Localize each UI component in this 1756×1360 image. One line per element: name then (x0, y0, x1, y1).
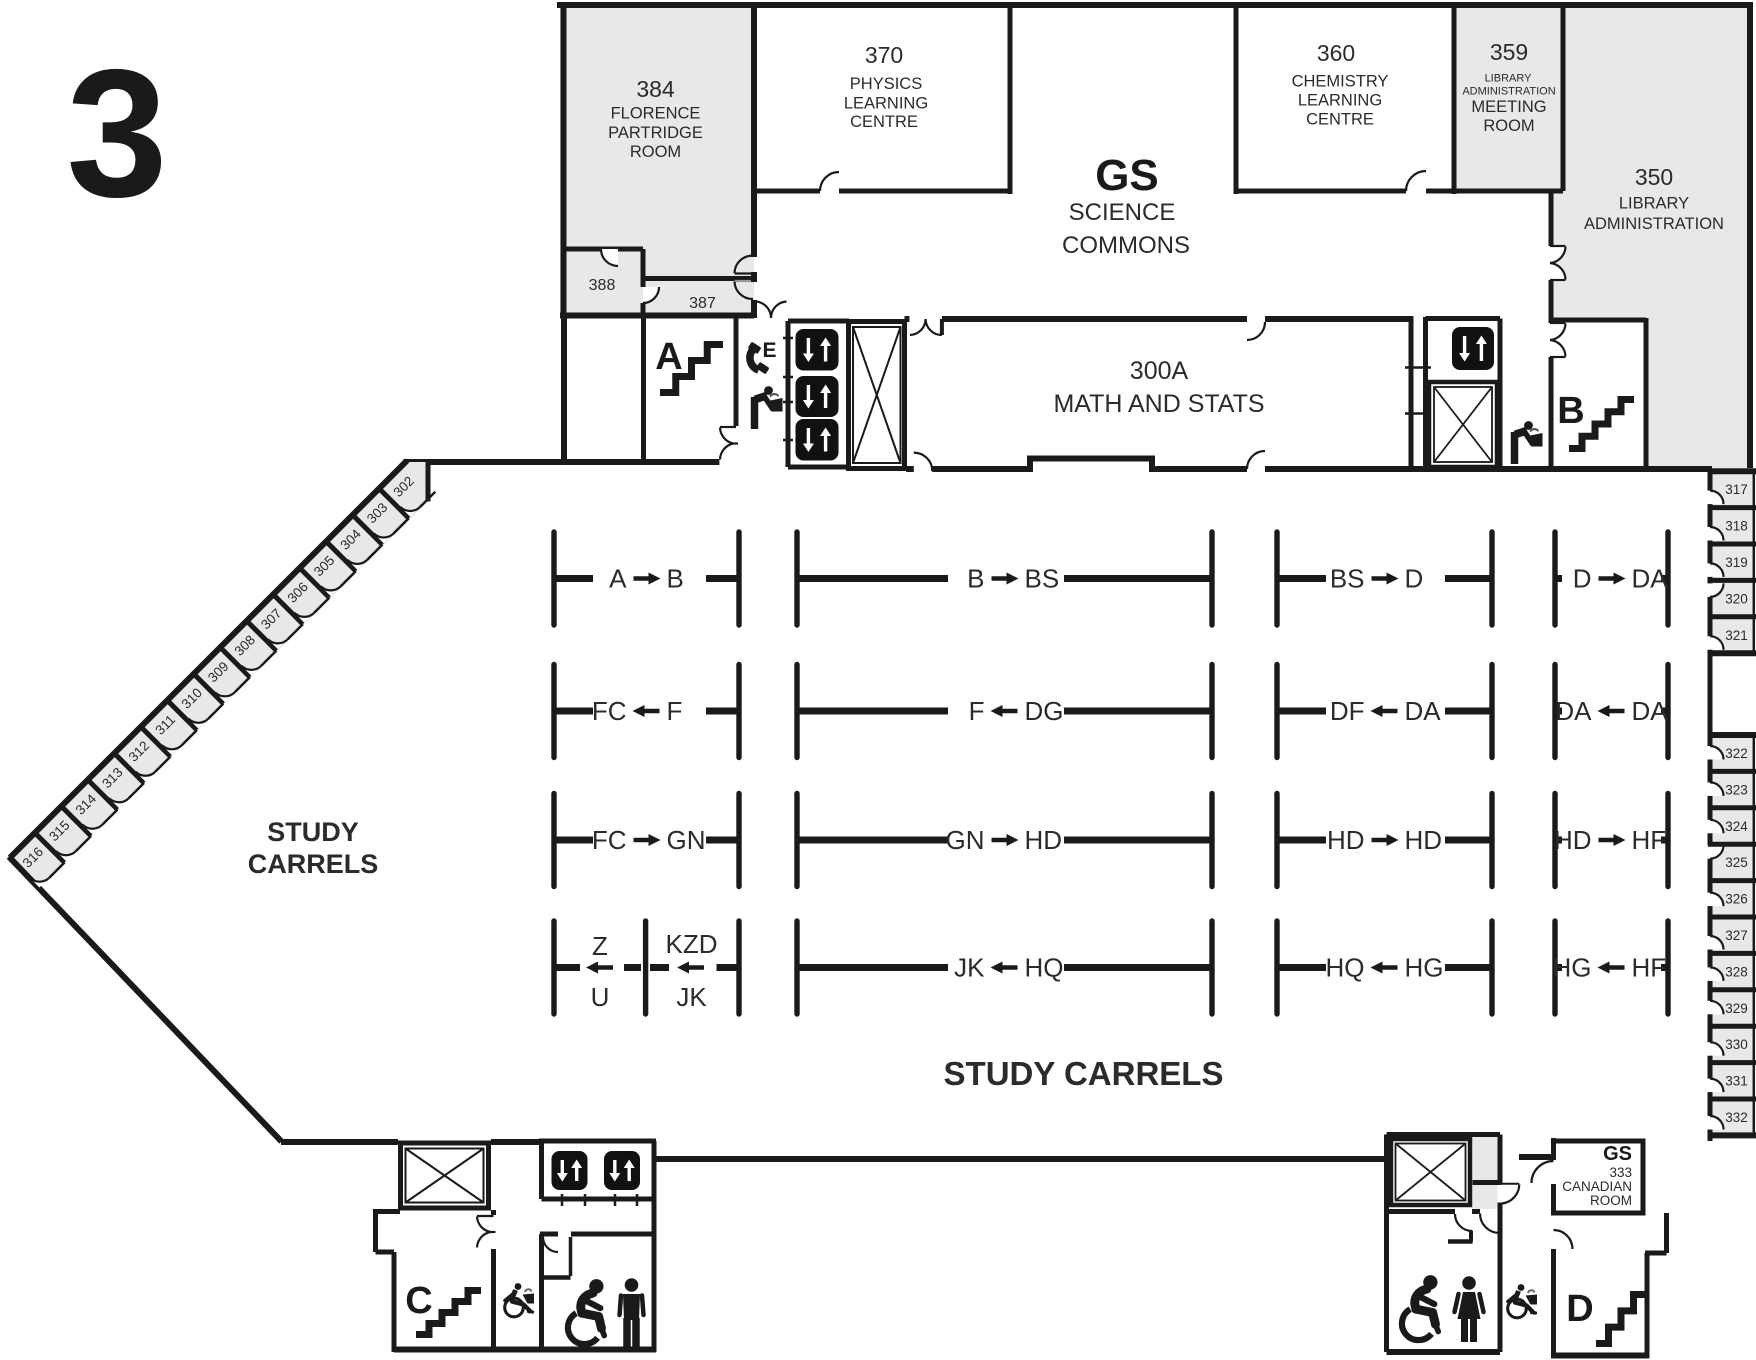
svg-text:384: 384 (636, 76, 675, 102)
svg-text:326: 326 (1725, 892, 1748, 907)
svg-text:331: 331 (1725, 1074, 1748, 1089)
svg-text:C: C (405, 1280, 432, 1322)
svg-text:FLORENCE: FLORENCE (611, 105, 701, 123)
svg-text:ROOM: ROOM (630, 143, 681, 161)
svg-text:LEARNING: LEARNING (1298, 92, 1382, 110)
svg-text:370: 370 (865, 42, 903, 68)
svg-text:387: 387 (689, 295, 716, 312)
svg-text:330: 330 (1725, 1037, 1748, 1052)
svg-text:ROOM: ROOM (1483, 117, 1534, 135)
svg-text:GS: GS (1603, 1143, 1632, 1165)
svg-text:388: 388 (589, 277, 616, 294)
svg-text:318: 318 (1725, 519, 1748, 534)
svg-text:HD: HD (1327, 825, 1365, 855)
svg-text:350: 350 (1635, 164, 1673, 190)
svg-text:STUDY: STUDY (267, 817, 359, 847)
svg-text:SCIENCE: SCIENCE (1069, 199, 1176, 226)
svg-text:324: 324 (1725, 819, 1748, 834)
svg-text:Z: Z (592, 931, 608, 961)
svg-text:F: F (667, 696, 683, 726)
svg-text:HQ: HQ (1326, 953, 1365, 983)
svg-text:D: D (1405, 564, 1424, 594)
svg-text:B: B (667, 564, 684, 594)
svg-text:B: B (1557, 390, 1584, 432)
svg-text:HD: HD (1405, 825, 1443, 855)
svg-text:LEARNING: LEARNING (844, 95, 928, 113)
svg-text:FC: FC (592, 825, 627, 855)
svg-text:A: A (655, 336, 682, 378)
svg-text:HD: HD (1025, 825, 1063, 855)
svg-text:333: 333 (1609, 1165, 1632, 1180)
svg-text:CARRELS: CARRELS (248, 849, 379, 879)
svg-text:LIBRARY: LIBRARY (1619, 195, 1689, 213)
svg-text:DA: DA (1632, 696, 1669, 726)
svg-text:327: 327 (1725, 928, 1748, 943)
svg-text:STUDY CARRELS: STUDY CARRELS (944, 1055, 1224, 1092)
svg-text:DA: DA (1405, 696, 1442, 726)
svg-text:MATH AND STATS: MATH AND STATS (1053, 390, 1264, 418)
svg-text:325: 325 (1725, 855, 1748, 870)
svg-text:DG: DG (1025, 696, 1064, 726)
svg-text:PHYSICS: PHYSICS (850, 75, 922, 93)
svg-text:DF: DF (1330, 696, 1365, 726)
svg-text:GS: GS (1095, 151, 1159, 200)
svg-text:GN: GN (946, 825, 985, 855)
svg-text:CHEMISTRY: CHEMISTRY (1292, 73, 1389, 91)
svg-text:MEETING: MEETING (1471, 98, 1546, 116)
svg-text:COMMONS: COMMONS (1062, 232, 1190, 259)
svg-text:ROOM: ROOM (1590, 1193, 1632, 1208)
svg-text:A: A (609, 564, 627, 594)
svg-text:E: E (762, 339, 776, 362)
svg-text:F: F (969, 696, 985, 726)
svg-text:317: 317 (1725, 482, 1748, 497)
svg-text:U: U (591, 982, 610, 1012)
svg-text:323: 323 (1725, 782, 1748, 797)
svg-text:3: 3 (66, 31, 167, 235)
svg-text:360: 360 (1317, 40, 1355, 66)
svg-text:LIBRARY: LIBRARY (1485, 73, 1533, 85)
svg-text:BS: BS (1025, 564, 1060, 594)
svg-text:DA: DA (1555, 696, 1592, 726)
svg-text:320: 320 (1725, 591, 1748, 606)
svg-text:DA: DA (1632, 564, 1669, 594)
svg-text:PARTRIDGE: PARTRIDGE (608, 124, 703, 142)
svg-text:300A: 300A (1130, 357, 1189, 385)
svg-text:ADMINISTRATION: ADMINISTRATION (1584, 215, 1724, 233)
svg-text:JK: JK (676, 982, 707, 1012)
svg-text:359: 359 (1490, 39, 1528, 65)
svg-text:332: 332 (1725, 1110, 1748, 1125)
svg-text:B: B (967, 564, 984, 594)
svg-text:HQ: HQ (1025, 953, 1064, 983)
svg-text:321: 321 (1725, 628, 1748, 643)
svg-text:D: D (1566, 1288, 1593, 1330)
svg-text:BS: BS (1330, 564, 1365, 594)
svg-text:HG: HG (1553, 953, 1592, 983)
svg-text:GN: GN (667, 825, 706, 855)
svg-text:ADMINISTRATION: ADMINISTRATION (1462, 86, 1555, 98)
svg-text:319: 319 (1725, 555, 1748, 570)
svg-text:322: 322 (1725, 746, 1748, 761)
svg-text:HG: HG (1405, 953, 1444, 983)
svg-text:CENTRE: CENTRE (850, 113, 918, 131)
svg-text:D: D (1573, 564, 1592, 594)
svg-text:KZD: KZD (666, 929, 718, 959)
svg-text:HF: HF (1632, 825, 1667, 855)
svg-text:CANADIAN: CANADIAN (1562, 1179, 1632, 1194)
svg-text:328: 328 (1725, 964, 1748, 979)
svg-text:JK: JK (954, 953, 985, 983)
svg-text:329: 329 (1725, 1001, 1748, 1016)
svg-text:HD: HD (1554, 825, 1592, 855)
svg-text:FC: FC (592, 696, 627, 726)
svg-text:HF: HF (1632, 953, 1667, 983)
svg-text:CENTRE: CENTRE (1306, 111, 1374, 129)
